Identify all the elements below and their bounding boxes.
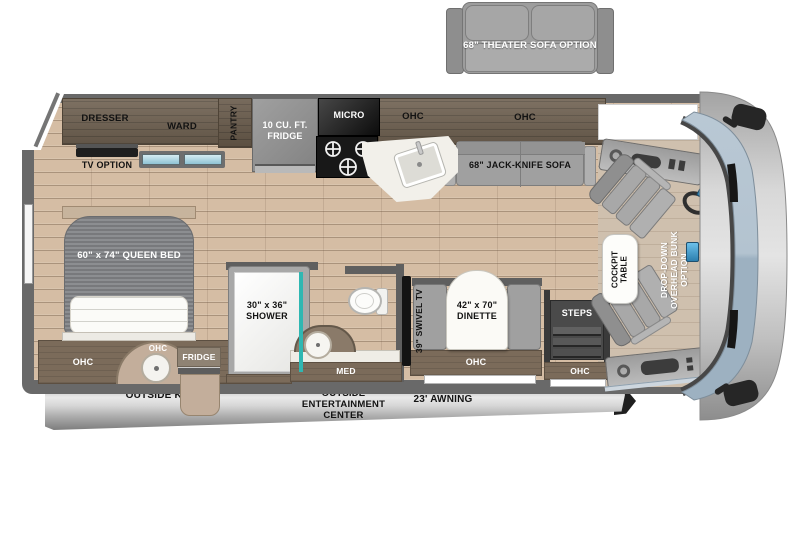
pantry-label-wrap: PANTRY <box>214 98 254 148</box>
bedroom-ohc-label: OHC <box>58 357 108 368</box>
micro-label: MICRO <box>318 110 380 121</box>
kitchen-ohc-label: OHC <box>388 111 438 122</box>
jack-knife-sofa-label: 68" JACK-KNIFE SOFA <box>444 158 596 172</box>
dresser-label: DRESSER <box>65 113 145 124</box>
theater-sofa-back-cushion <box>465 5 529 41</box>
fridge-vent <box>255 164 315 173</box>
floorplan-canvas: OUTSIDE KITCHEN OUTSIDE ENTERTAINMENT CE… <box>0 0 800 545</box>
fridge-label: 10 CU. FT. FRIDGE <box>254 120 316 141</box>
outside-sink-ohc-label: OHC <box>136 344 180 353</box>
shower-label: 30" x 36" SHOWER <box>234 300 300 321</box>
outside-fridge-vent <box>178 367 220 374</box>
living-ohc-label: OHC <box>500 112 550 123</box>
rear-wall-window <box>24 204 33 284</box>
window <box>184 154 222 165</box>
swivel-tv-label-wrap: 39" SWIVEL TV <box>406 276 432 366</box>
dinette-label: 42" x 70" DINETTE <box>446 300 508 321</box>
tv-screen <box>76 148 138 157</box>
cab-nose <box>594 86 794 426</box>
awning-label: 23' AWNING <box>398 394 488 406</box>
tv-option-label: TV OPTION <box>68 160 146 171</box>
windshield-pillar <box>731 164 734 202</box>
windshield-pillar <box>731 310 734 348</box>
dinette-ohc-label: OHC <box>452 357 500 368</box>
vanity-drain-dot <box>316 343 320 347</box>
bath-wall <box>345 266 403 274</box>
bed-bench <box>62 332 196 341</box>
theater-sofa-label: 68" THEATER SOFA OPTION <box>446 38 614 54</box>
queen-bed-label: 60" x 74" QUEEN BED <box>64 250 194 261</box>
outside-sink-drain-dot <box>154 366 159 371</box>
window <box>142 154 180 165</box>
bath-lower-cabinet <box>226 374 292 384</box>
pantry-label: PANTRY <box>229 105 239 140</box>
dinette-window <box>424 375 536 384</box>
jack-knife-sofa-back <box>457 142 585 155</box>
outside-kitchen-door-flap <box>180 374 220 416</box>
swivel-tv-label: 39" SWIVEL TV <box>414 289 424 353</box>
toilet-seat-inner <box>355 293 374 309</box>
outside-fridge-label: FRIDGE <box>177 352 221 362</box>
shower-glass-teal <box>299 272 303 372</box>
dinette-bench-right <box>507 284 541 350</box>
bed-sheets <box>70 296 188 334</box>
ward-label: WARD <box>147 121 217 132</box>
sink-drain-dot <box>417 162 422 167</box>
med-label: MED <box>316 366 376 376</box>
theater-sofa-back-cushion <box>531 5 595 41</box>
